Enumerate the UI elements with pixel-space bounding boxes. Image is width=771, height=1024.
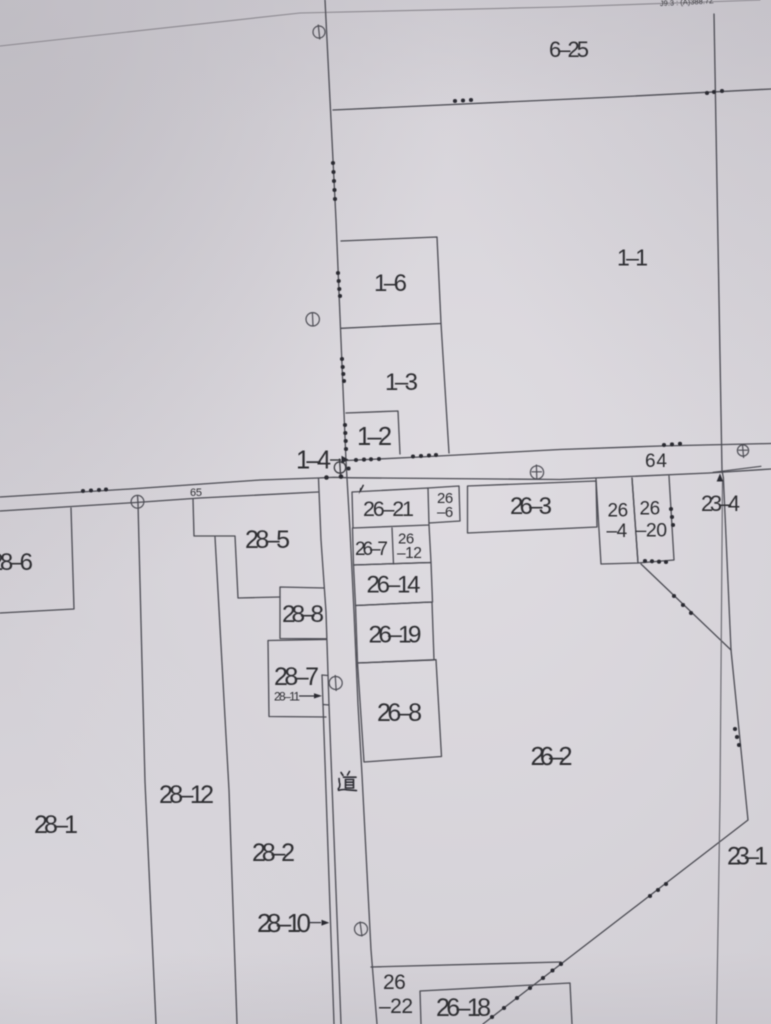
svg-text:28–5: 28–5 bbox=[245, 526, 290, 554]
svg-text:26–3: 26–3 bbox=[510, 493, 552, 520]
svg-text:28–8: 28–8 bbox=[282, 601, 324, 628]
svg-text:–4: –4 bbox=[607, 521, 628, 542]
svg-text:64: 64 bbox=[645, 451, 667, 472]
svg-text:26–2: 26–2 bbox=[531, 743, 573, 771]
svg-text:–22: –22 bbox=[379, 995, 413, 1018]
svg-text:26: 26 bbox=[383, 971, 405, 994]
svg-text:65: 65 bbox=[190, 487, 202, 499]
svg-text:1–3: 1–3 bbox=[385, 369, 418, 396]
svg-text:–12: –12 bbox=[397, 545, 421, 562]
svg-text:26–19: 26–19 bbox=[369, 622, 422, 649]
svg-text:26–21: 26–21 bbox=[363, 497, 414, 521]
svg-text:28–7: 28–7 bbox=[274, 663, 319, 691]
svg-text:28–12: 28–12 bbox=[159, 781, 214, 809]
svg-text:28–6: 28–6 bbox=[0, 549, 33, 576]
svg-text:1–4: 1–4 bbox=[296, 447, 331, 475]
svg-text:28–1: 28–1 bbox=[34, 811, 78, 839]
svg-text:1–2: 1–2 bbox=[357, 423, 392, 451]
svg-text:28–2: 28–2 bbox=[252, 839, 295, 867]
svg-text:–6: –6 bbox=[437, 504, 453, 521]
svg-text:23–1: 23–1 bbox=[727, 843, 768, 871]
svg-text:26–18: 26–18 bbox=[436, 994, 491, 1022]
svg-text:26–14: 26–14 bbox=[367, 572, 421, 599]
svg-text:26: 26 bbox=[640, 499, 660, 520]
svg-text:23–4: 23–4 bbox=[701, 491, 740, 516]
svg-text:1–6: 1–6 bbox=[374, 270, 407, 297]
svg-text:–20: –20 bbox=[636, 520, 668, 542]
svg-text:28–10: 28–10 bbox=[257, 908, 311, 938]
svg-text:28–11: 28–11 bbox=[274, 690, 300, 704]
svg-text:26–7: 26–7 bbox=[355, 539, 388, 560]
svg-text:26–8: 26–8 bbox=[377, 699, 422, 727]
svg-text:1–1: 1–1 bbox=[617, 245, 648, 271]
svg-text:6–25: 6–25 bbox=[549, 37, 589, 62]
svg-text:26: 26 bbox=[608, 501, 628, 522]
